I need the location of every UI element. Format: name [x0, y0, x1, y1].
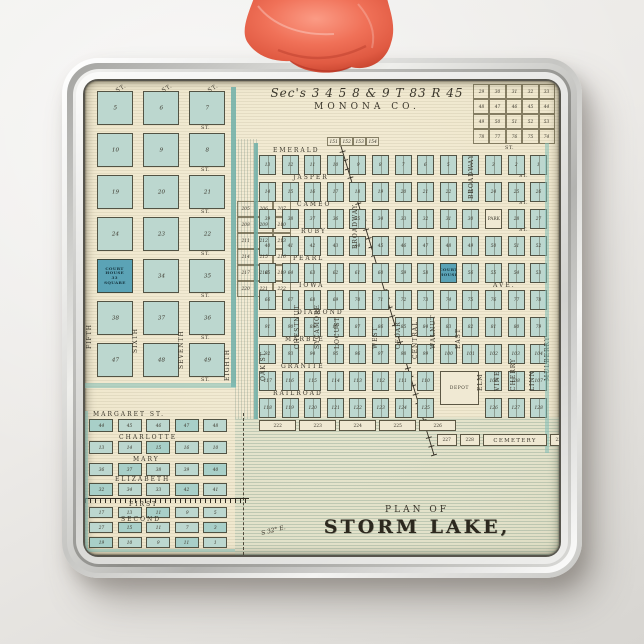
main-plat-block: 91: [259, 317, 276, 337]
main-plat-block: 10: [327, 155, 344, 175]
main-plat-block: 76: [485, 290, 502, 310]
court-house-square-block: COURTHOUSE33SQUARE: [97, 259, 133, 293]
main-plat-block: 17: [327, 182, 344, 202]
main-plat-block: 6: [417, 155, 434, 175]
left-plat-block: 48: [143, 343, 179, 377]
small-plat-block: 19: [89, 537, 113, 548]
small-plat-block: 5: [203, 507, 227, 518]
small-plat-block: 37: [118, 463, 142, 476]
main-plat-block: 18: [349, 182, 366, 202]
product-photo: Sec's 3 4 5 8 & 9 T 83 R 45 MONONA CO. P…: [0, 0, 644, 644]
cemetery-strip-cell: CEMETERY: [483, 434, 547, 446]
small-plat-block: 16: [175, 441, 199, 454]
main-plat-block: 123: [372, 398, 389, 418]
left-plat-block: 47: [97, 343, 133, 377]
street-teal-strip: [231, 87, 236, 387]
street-label-horizontal: SECOND: [121, 516, 161, 523]
street-label-vertical: CHESTNUT: [294, 304, 301, 349]
main-plat-block: 124: [395, 398, 412, 418]
main-plat-block: 60: [372, 263, 389, 283]
outlot-table-cell: 220: [237, 281, 255, 297]
main-plat-block: 3: [485, 155, 502, 175]
left-plat-block: 8: [189, 133, 225, 167]
street-label-ave: AVE.: [493, 282, 516, 289]
corner-table-cell: 46: [506, 99, 522, 114]
street-label-horizontal: FIRST: [129, 501, 158, 508]
railroad-line-horizontal: [85, 498, 249, 503]
corner-table-cell: 76: [506, 129, 522, 144]
corner-table-cell: 48: [473, 99, 489, 114]
main-plat-block: 19: [372, 182, 389, 202]
street-label-vertical: SIXTH: [132, 328, 139, 353]
main-plat-block: 54: [508, 263, 525, 283]
ornament-ribbon: [238, 0, 402, 80]
main-plat-block: 15: [282, 182, 299, 202]
main-plat-block: 13: [259, 155, 276, 175]
street-label-st: ST.: [201, 125, 210, 131]
corner-table-cell: 78: [473, 129, 489, 144]
small-plat-block: 1: [203, 537, 227, 548]
main-plat-block: 127: [508, 398, 525, 418]
small-plat-block: 39: [175, 463, 199, 476]
corner-table-cell: 50: [489, 114, 505, 129]
street-label-horizontal: RAILROAD: [273, 390, 323, 397]
depot-block: DEPOT: [440, 371, 480, 405]
outlot-strip-cell: 224: [339, 420, 376, 431]
small-plat-block: 36: [89, 463, 113, 476]
left-plat-block: 9: [143, 133, 179, 167]
small-plat-block: 33: [146, 483, 170, 496]
main-plat-block: 12: [282, 155, 299, 175]
corner-table-cell: 53: [539, 114, 555, 129]
outlot-table-cell: 211: [237, 233, 255, 249]
main-plat-block: 16: [304, 182, 321, 202]
main-plat-block: 96: [349, 344, 366, 364]
small-plat-block: 9: [146, 537, 170, 548]
street-label-st: ST.: [201, 251, 210, 257]
outlot-table-cell: 208: [237, 217, 255, 233]
left-plat-block: 10: [97, 133, 133, 167]
main-plat-block: 36: [327, 209, 344, 229]
street-label-horizontal: EMERALD: [273, 147, 320, 154]
small-plat-block: 27: [89, 522, 113, 533]
main-plat-block: 21: [417, 182, 434, 202]
main-plat-block: 7: [395, 155, 412, 175]
small-plat-block: 11: [175, 537, 199, 548]
main-plat-block: 120: [304, 398, 321, 418]
street-teal-strip: [545, 143, 549, 453]
small-plat-block: 45: [118, 419, 142, 432]
main-plat-block: 8: [372, 155, 389, 175]
outlot-strip-cell: 222: [259, 420, 296, 431]
main-plat-block: 59: [395, 263, 412, 283]
main-plat-block: 25: [508, 182, 525, 202]
small-plat-block: 14: [118, 441, 142, 454]
section-header: Sec's 3 4 5 8 & 9 T 83 R 45: [237, 86, 497, 100]
small-plat-block: 46: [146, 419, 170, 432]
small-plat-block: 11: [146, 522, 170, 533]
street-teal-strip: [85, 383, 236, 388]
street-label-st: ST.: [201, 335, 210, 341]
left-plat-block: 19: [97, 175, 133, 209]
left-plat-block: 6: [143, 91, 179, 125]
small-plat-block: 34: [118, 483, 142, 496]
corner-table-cell: 49: [473, 114, 489, 129]
left-plat-block: 7: [189, 91, 225, 125]
street-label-vertical: ELM: [477, 373, 484, 391]
cemetery-strip-cell: 228: [460, 434, 480, 446]
main-plat-block: 2: [508, 155, 525, 175]
corner-table-cell: 75: [522, 129, 538, 144]
main-plat-block: 81: [485, 317, 502, 337]
corner-table-cell: 30: [489, 84, 505, 99]
main-plat-block: 112: [372, 371, 389, 391]
main-plat-block: 121: [327, 398, 344, 418]
left-plat-block: 5: [97, 91, 133, 125]
left-plat-block: 20: [143, 175, 179, 209]
section-line: [243, 413, 244, 555]
main-plat-block: 55: [485, 263, 502, 283]
street-label-vertical: WALNUT: [430, 315, 437, 350]
top-box-cell: 154: [366, 137, 379, 146]
street-label-vertical: WEST: [372, 326, 379, 349]
main-plat-block: 62: [327, 263, 344, 283]
left-plat-block: 23: [143, 217, 179, 251]
main-plat-block: 110: [417, 371, 434, 391]
small-plat-block: 48: [203, 419, 227, 432]
corner-table-cell: 52: [522, 114, 538, 129]
street-label-horizontal: ELIZABETH: [115, 476, 170, 483]
plan-of-label: PLAN OF: [327, 505, 507, 515]
main-plat-block: 49: [462, 236, 479, 256]
street-label-st: ST.: [201, 209, 210, 215]
corner-table-cell: 74: [539, 129, 555, 144]
main-plat-block: 63: [304, 263, 321, 283]
main-plat-block: 24: [485, 182, 502, 202]
main-plat-block: 58: [417, 263, 434, 283]
main-plat-block: 116: [282, 371, 299, 391]
small-plat-block: 9: [175, 507, 199, 518]
main-plat-block: 114: [327, 371, 344, 391]
small-plat-block: 15: [146, 441, 170, 454]
main-plat-block: 75: [462, 290, 479, 310]
small-plat-block: 13: [89, 441, 113, 454]
main-plat-block: 9: [349, 155, 366, 175]
main-plat-block: 50: [485, 236, 502, 256]
outlot-strip-cell: 223: [299, 420, 336, 431]
small-plat-block: 41: [203, 483, 227, 496]
left-plat-block: 24: [97, 217, 133, 251]
main-plat-block: 34: [372, 209, 389, 229]
main-plat-block: 31: [440, 209, 457, 229]
main-plat-block: 42: [304, 236, 321, 256]
left-plat-block: 38: [97, 301, 133, 335]
main-plat-block: 22: [440, 182, 457, 202]
corner-table-cell: 51: [506, 114, 522, 129]
street-label-vertical: SEVENTH: [178, 330, 185, 369]
main-plat-block: 72: [395, 290, 412, 310]
street-label-broadway: BROADWAY: [352, 204, 359, 249]
small-plat-block: 7: [175, 522, 199, 533]
main-plat-block: 126: [485, 398, 502, 418]
cemetery-strip-cell: 227: [437, 434, 457, 446]
street-label-st: ST.: [505, 145, 514, 151]
main-plat-block: 115: [304, 371, 321, 391]
small-plat-block: 47: [175, 419, 199, 432]
street-label-horizontal: IOWA: [299, 282, 325, 289]
street-label-vertical: LOCUST: [334, 316, 341, 349]
main-plat-block: 66: [259, 290, 276, 310]
street-label-horizontal: RUBY: [301, 228, 327, 235]
left-plat-block: 37: [143, 301, 179, 335]
court-house-block: COURTHOUSE: [440, 263, 457, 283]
main-plat-block: 45: [372, 236, 389, 256]
street-label-horizontal: JASPER: [293, 174, 329, 181]
main-plat-block: 101: [462, 344, 479, 364]
corner-table-cell: 44: [539, 99, 555, 114]
main-plat-block: 73: [417, 290, 434, 310]
metal-ornament: Sec's 3 4 5 8 & 9 T 83 R 45 MONONA CO. P…: [62, 58, 582, 578]
main-plat-block: 56: [462, 263, 479, 283]
street-label-vertical: EIGHTH: [224, 349, 231, 381]
main-plat-block: 119: [282, 398, 299, 418]
street-label-horizontal: PEARL: [293, 255, 324, 262]
left-plat-block: 36: [189, 301, 225, 335]
main-plat-block: 111: [395, 371, 412, 391]
small-plat-block: 10: [203, 441, 227, 454]
street-label-horizontal: GRANITE: [281, 363, 325, 370]
main-plat-block: 102: [485, 344, 502, 364]
main-plat-block: 11: [304, 155, 321, 175]
street-label-vertical: CENTRAL: [412, 321, 419, 359]
main-plat-block: 80: [508, 317, 525, 337]
park-block: PARK: [485, 209, 502, 229]
street-label-horizontal: CAMEO: [297, 201, 331, 208]
main-plat-block: 30: [462, 209, 479, 229]
main-plat-block: 69: [327, 290, 344, 310]
street-label-vertical: FIFTH: [86, 324, 93, 349]
main-plat-block: 47: [417, 236, 434, 256]
small-plat-block: 44: [89, 419, 113, 432]
small-plat-block: 15: [118, 522, 142, 533]
main-plat-block: 33: [395, 209, 412, 229]
main-plat-block: 43: [327, 236, 344, 256]
main-plat-block: 77: [508, 290, 525, 310]
main-plat-block: 51: [508, 236, 525, 256]
main-plat-block: 37: [304, 209, 321, 229]
small-plat-block: 10: [118, 537, 142, 548]
street-label-vertical: CHERRY: [510, 358, 517, 391]
main-plat-block: 82: [462, 317, 479, 337]
main-plat-block: 48: [440, 236, 457, 256]
left-plat-block: 35: [189, 259, 225, 293]
corner-table-cell: 77: [489, 129, 505, 144]
main-plat-block: 71: [372, 290, 389, 310]
corner-table-cell: 31: [506, 84, 522, 99]
street-teal-strip: [254, 143, 258, 419]
main-plat-block: 125: [417, 398, 434, 418]
corner-table-cell: 29: [473, 84, 489, 99]
small-plat-block: 38: [146, 463, 170, 476]
map-print: Sec's 3 4 5 8 & 9 T 83 R 45 MONONA CO. P…: [85, 81, 559, 555]
top-box-cell: 153: [353, 137, 366, 146]
main-plat-block: 87: [349, 317, 366, 337]
main-plat-block: 122: [349, 398, 366, 418]
outlot-table-cell: 217: [237, 265, 255, 281]
left-plat-block: 21: [189, 175, 225, 209]
main-plat-block: 5: [440, 155, 457, 175]
small-plat-block: 32: [89, 483, 113, 496]
outlot-table-cell: 214: [237, 249, 255, 265]
main-plat-block: 28: [508, 209, 525, 229]
main-plat-block: 70: [349, 290, 366, 310]
outlot-strip-cell: 225: [379, 420, 416, 431]
corner-table-cell: 33: [539, 84, 555, 99]
small-plat-block: 3: [203, 522, 227, 533]
county-label: MONONA CO.: [237, 102, 497, 112]
top-box-cell: 152: [340, 137, 353, 146]
main-plat-block: 118: [259, 398, 276, 418]
outlot-table-cell: 205: [237, 201, 255, 217]
small-plat-block: 42: [175, 483, 199, 496]
main-plat-block: 14: [259, 182, 276, 202]
corner-table-cell: 45: [522, 99, 538, 114]
street-label-horizontal: CHARLOTTE: [119, 434, 177, 441]
street-label-st: ST.: [201, 293, 210, 299]
street-teal-strip: [85, 411, 88, 551]
main-plat-block: 32: [417, 209, 434, 229]
main-plat-block: 20: [395, 182, 412, 202]
main-plat-block: 61: [349, 263, 366, 283]
left-plat-block: 22: [189, 217, 225, 251]
street-label-vertical: EAST: [455, 328, 462, 349]
street-label-horizontal: MARGARET ST.: [93, 411, 165, 418]
street-teal-strip: [85, 549, 235, 552]
small-plat-block: 17: [89, 507, 113, 518]
corner-table-cell: 32: [522, 84, 538, 99]
street-label-st: ST.: [201, 167, 210, 173]
left-plat-block: 49: [189, 343, 225, 377]
main-plat-block: 46: [395, 236, 412, 256]
main-plat-block: 74: [440, 290, 457, 310]
small-plat-block: 40: [203, 463, 227, 476]
corner-table-cell: 47: [489, 99, 505, 114]
cemetery-strip-cell: 230: [550, 434, 559, 446]
top-box-cell: 151: [327, 137, 340, 146]
left-plat-block: 34: [143, 259, 179, 293]
main-plat-block: 113: [349, 371, 366, 391]
storm-lake-title: STORM LAKE,: [287, 516, 547, 538]
street-label-horizontal: MARY: [133, 456, 160, 463]
outlot-strip-cell: 226: [419, 420, 456, 431]
